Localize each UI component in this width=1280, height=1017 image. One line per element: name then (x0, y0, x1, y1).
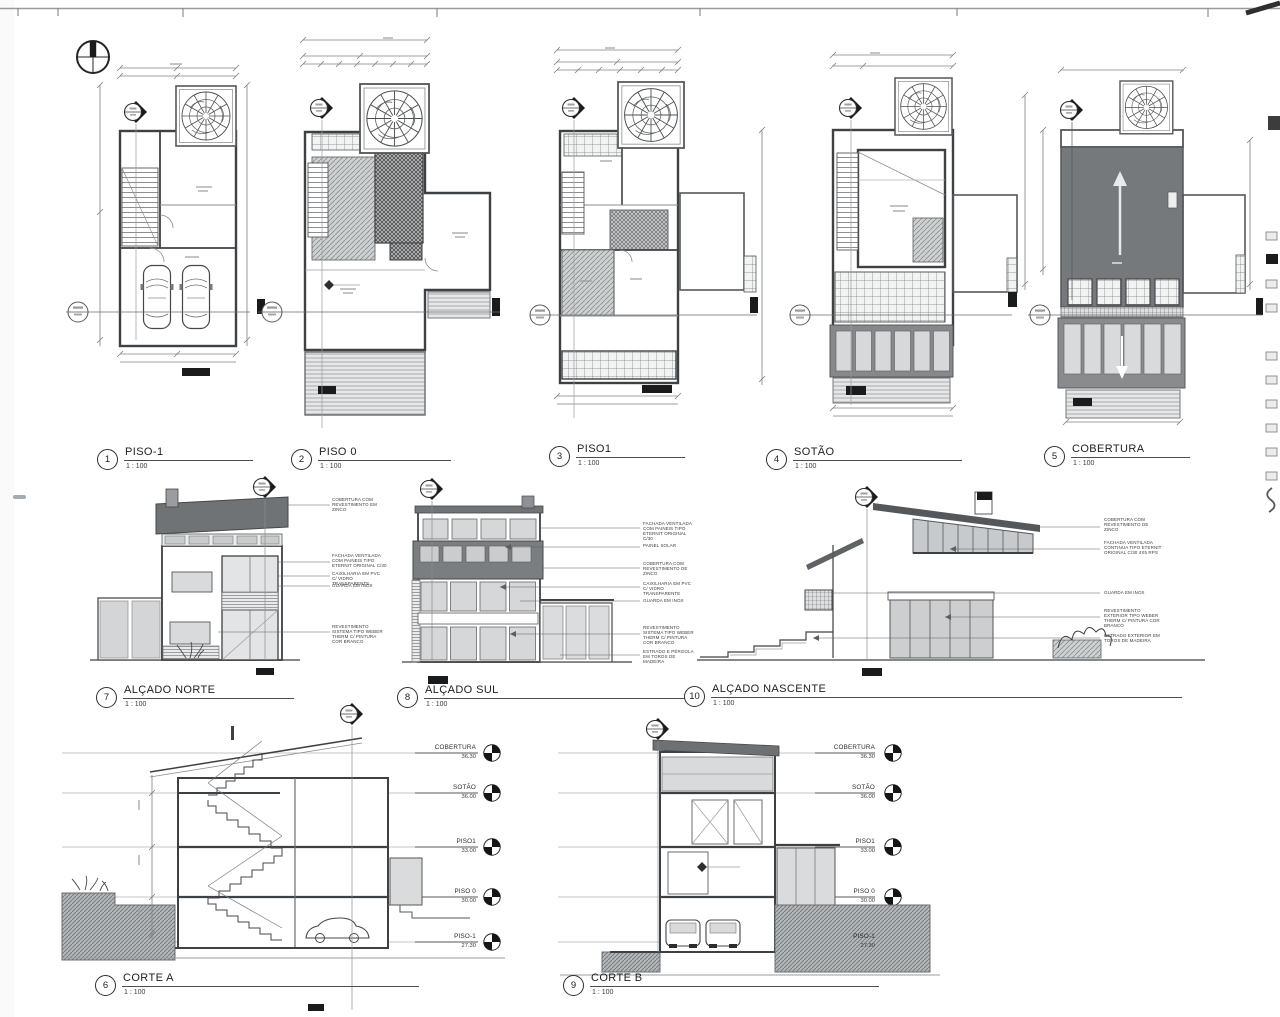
view-title-label: ALÇADO NORTE (123, 684, 294, 699)
section-marker-icon (647, 718, 670, 740)
view-title-cobertura: 5 COBERTURA 1 : 100 (1044, 443, 1190, 467)
level-label-piso1: PISO133.00 (414, 838, 476, 854)
note-sul-2: PAINEL SOLAR (643, 543, 695, 548)
level-label-cobertura: COBERTURA36.30 (813, 744, 875, 760)
north-arrow-icon (77, 41, 109, 73)
section-marker-icon (1061, 99, 1084, 121)
view-scale-label: 1 : 100 (793, 463, 962, 470)
plan-piso-0 (258, 37, 500, 428)
elevation-norte (90, 476, 330, 675)
tree-icon (1120, 81, 1173, 134)
section-marker-icon (311, 97, 334, 119)
note-nascente-5: ESTRADO EXTERIOR EM TOROS DE MADEIRA (1104, 633, 1162, 643)
view-number-badge: 9 (563, 975, 584, 996)
car-top-icon (141, 266, 174, 329)
view-scale-label: 1 : 100 (711, 700, 1182, 707)
view-scale-label: 1 : 100 (123, 701, 294, 708)
view-title-label: ALÇADO NASCENTE (711, 683, 1182, 698)
ground-hatch (62, 893, 175, 960)
view-number-badge: 2 (291, 449, 312, 470)
level-label-piso0: PISO 030.00 (813, 888, 875, 904)
level-marker-icon (885, 889, 901, 905)
stairs (562, 172, 584, 234)
view-number-badge: 8 (397, 687, 418, 708)
view-title-piso-1: 3 PISO1 1 : 100 (549, 443, 685, 467)
view-title-label: CORTE A (122, 972, 419, 987)
plan-piso-1 (530, 47, 765, 418)
section-marker-icon (125, 101, 148, 123)
view-title-label: COBERTURA (1071, 443, 1190, 458)
note-sul-7: ESTRADO E PÉRGOLA EM TOROS DE MADEIRA (643, 649, 695, 664)
view-title-corte-b: 9 CORTE B 1 : 100 (563, 972, 879, 996)
grid-bubble-icon (262, 302, 282, 322)
level-label-sotao: SOTÃO36.00 (414, 784, 476, 800)
view-title-corte-a: 6 CORTE A 1 : 100 (95, 972, 419, 996)
architectural-drawing-sheet[interactable]: 1 PISO-1 1 : 100 2 PISO 0 1 : 100 3 PISO… (0, 0, 1280, 1017)
plan-cobertura (1028, 67, 1263, 425)
note-sul-3: COBERTURA COM REVESTIMENTO DE ZINCO (643, 561, 695, 576)
plan-sotao (790, 52, 1028, 416)
section-marker-icon (563, 97, 586, 119)
section-marker-icon (341, 703, 364, 725)
view-title-alcado-norte: 7 ALÇADO NORTE 1 : 100 (96, 684, 294, 708)
view-number-badge: 5 (1044, 446, 1065, 467)
view-scale-label: 1 : 100 (424, 701, 697, 708)
level-label-piso1: PISO133.00 (813, 838, 875, 854)
view-title-piso-minus1: 1 PISO-1 1 : 100 (97, 446, 253, 470)
view-scale-label: 1 : 100 (318, 463, 451, 470)
tree-icon (618, 82, 684, 148)
elevation-marker-icon (254, 476, 277, 498)
view-number-badge: 3 (549, 446, 570, 467)
grid-bubble-icon (68, 302, 88, 322)
level-marker-icon (885, 839, 901, 855)
view-title-sotao: 4 SOTÃO 1 : 100 (766, 446, 962, 470)
stairs (837, 153, 858, 250)
note-sul-6: REVESTIMENTO SISTEMA TIPO WEBER THERM C/… (643, 625, 695, 645)
view-title-label: CORTE B (590, 972, 879, 987)
kitchen-hatch (375, 148, 423, 243)
level-marker-icon (484, 839, 500, 855)
railing-grid (805, 590, 832, 610)
grid-bubble-icon (1030, 305, 1050, 325)
ground-hatch (602, 952, 660, 972)
view-scale-label: 1 : 100 (124, 463, 253, 470)
level-marker-icon (484, 785, 500, 801)
level-marker-icon (484, 934, 500, 950)
view-title-label: PISO-1 (124, 446, 253, 461)
view-scale-label: 1 : 100 (576, 460, 685, 467)
note-nascente-1: COBERTURA COM REVESTIMENTO DE ZINCO (1104, 517, 1162, 532)
note-norte-1: COBERTURA COM REVESTIMENTO EM ZINCO (332, 497, 386, 512)
balcony-grid (562, 351, 676, 379)
tree-icon (895, 78, 952, 135)
view-title-piso-0: 2 PISO 0 1 : 100 (291, 446, 451, 470)
deck-terrace (305, 352, 425, 415)
void-terrace (680, 193, 744, 290)
stairs (308, 163, 328, 237)
sheet-linework (0, 0, 1280, 1017)
level-label-piso-minus1: PISO-127.30 (813, 933, 875, 949)
view-title-label: PISO1 (576, 443, 685, 458)
plant-icon (72, 876, 108, 891)
view-scale-label: 1 : 100 (1071, 460, 1190, 467)
view-number-badge: 7 (96, 687, 117, 708)
view-number-badge: 1 (97, 449, 118, 470)
note-nascente-2: FACHADA VENTILADA CONTINUA TIPO ETERNIT … (1104, 540, 1162, 555)
level-marker-icon (484, 889, 500, 905)
level-marker-icon (484, 745, 500, 761)
canopy (806, 538, 864, 570)
view-title-alcado-sul: 8 ALÇADO SUL 1 : 100 (397, 684, 697, 708)
section-outline (178, 778, 388, 948)
level-label-cobertura: COBERTURA36.30 (414, 744, 476, 760)
tree-icon (360, 84, 429, 153)
plan-piso-minus1 (66, 41, 265, 376)
tree-icon (176, 86, 236, 146)
bedroom-hatch (562, 250, 614, 316)
note-norte-4: GUARDA EM INOX (332, 583, 386, 588)
view-number-badge: 10 (684, 686, 705, 707)
level-label-piso-minus1: PISO-127.30 (414, 933, 476, 949)
grid-bubble-icon (530, 305, 550, 325)
note-norte-2: FACHADA VENTILADA COM PAINEIS TIPO ETERN… (332, 553, 388, 568)
elevation-sul (402, 478, 640, 684)
level-label-piso0: PISO 030.00 (414, 888, 476, 904)
level-marker-icon (885, 745, 901, 761)
view-title-label: ALÇADO SUL (424, 684, 697, 699)
note-nascente-3: GUARDA EM INOX (1104, 590, 1162, 595)
level-label-sotao: SOTÃO36.00 (813, 784, 875, 800)
view-title-label: SOTÃO (793, 446, 962, 461)
exterior-steps (700, 632, 833, 657)
car-front-icon (706, 920, 740, 948)
note-sul-1: FACHADA VENTILADA COM PAINEIS TIPO ETERN… (643, 521, 695, 541)
view-scale-label: 1 : 100 (122, 989, 419, 996)
elevation-marker-icon (421, 478, 444, 500)
view-scale-label: 1 : 100 (590, 989, 879, 996)
view-title-alcado-nascente: 10 ALÇADO NASCENTE 1 : 100 (684, 683, 1182, 707)
view-title-label: PISO 0 (318, 446, 451, 461)
car-front-icon (666, 920, 700, 948)
note-nascente-4: REVESTIMENTO EXTERIOR TIPO WEBER THERM C… (1104, 608, 1162, 628)
car-top-icon (180, 266, 213, 329)
skylight-grid (835, 272, 945, 322)
grid-bubble-icon (790, 305, 810, 325)
lower-glazing (890, 600, 993, 658)
section-corte-b (558, 718, 940, 975)
note-sul-4: CAIXILHARIA EM PVC C/ VIDRO TRANSPARENTE (643, 581, 695, 596)
elevation-nascente (697, 486, 1205, 676)
section-marker-icon (840, 97, 863, 119)
view-number-badge: 6 (95, 975, 116, 996)
level-marker-icon (885, 785, 901, 801)
note-sul-5: GUARDA EM INOX (643, 598, 695, 603)
note-norte-5: REVESTIMENTO SISTEMA TIPO WEBER THERM C/… (332, 624, 386, 644)
view-number-badge: 4 (766, 449, 787, 470)
